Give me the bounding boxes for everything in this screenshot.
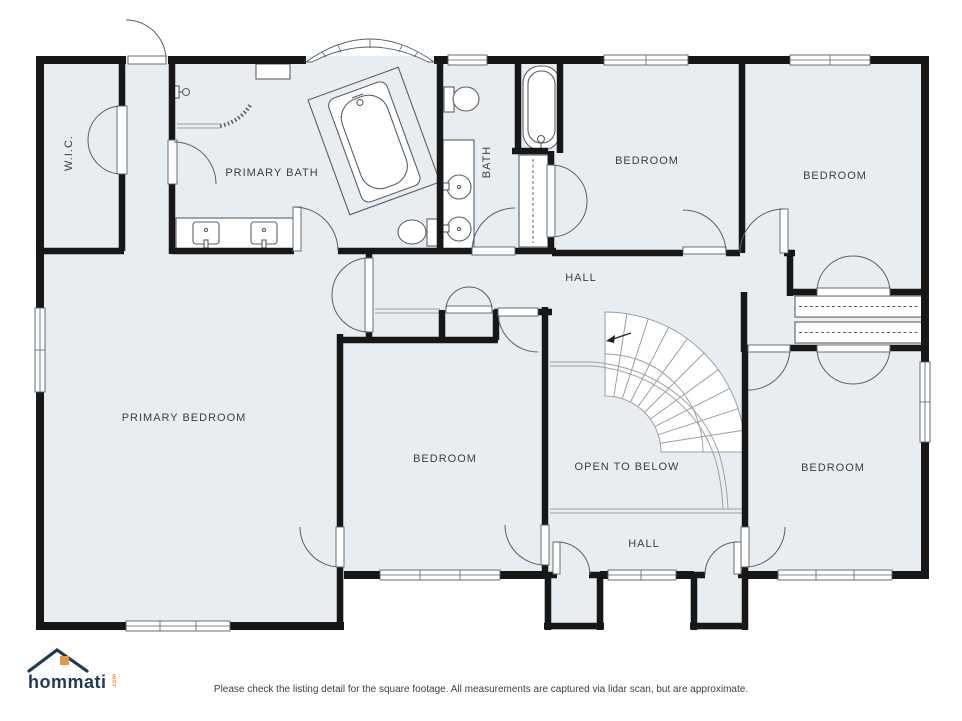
double-round-sink-vanity-icon [443,140,474,250]
room-label-hall-upper: HALL [565,272,597,284]
toilet-icon [398,219,438,246]
toilet-icon [444,87,479,112]
floor-plan-page: W.I.C. PRIMARY BATH BATH BEDROOM BEDROOM… [0,0,962,721]
window [126,621,230,631]
logo-window-icon [60,656,69,665]
closet-rod-icon [795,322,922,343]
floor-plan-svg: W.I.C. PRIMARY BATH BATH BEDROOM BEDROOM… [0,0,962,721]
room-label-wic: W.I.C. [63,135,75,171]
room-label-bedroom-middle: BEDROOM [413,453,477,465]
window [778,570,892,580]
window [35,308,45,392]
room-label-open-to-below: OPEN TO BELOW [575,461,680,473]
linen-closet-rod-icon [519,155,548,247]
window [608,570,676,580]
room-label-primary-bedroom: PRIMARY BEDROOM [122,412,247,424]
double-sink-vanity-icon [176,218,294,249]
room-label-bath: BATH [481,146,493,179]
room-label-bedroom-top-right: BEDROOM [803,170,867,182]
window [920,362,930,442]
room-label-hall-lower: HALL [628,538,660,550]
window [604,55,688,65]
bench-icon [256,64,290,79]
disclaimer-text: Please check the listing detail for the … [0,684,962,695]
room-label-bedroom-top-middle: BEDROOM [615,155,679,167]
logo-roof-icon [29,650,87,671]
window [380,570,500,580]
room-label-primary-bath: PRIMARY BATH [225,167,318,179]
freestanding-tub-icon [523,66,560,150]
window [448,55,487,65]
room-label-bedroom-bottom-right: BEDROOM [801,462,865,474]
window [790,55,870,65]
closet-rod-icon [795,296,922,317]
